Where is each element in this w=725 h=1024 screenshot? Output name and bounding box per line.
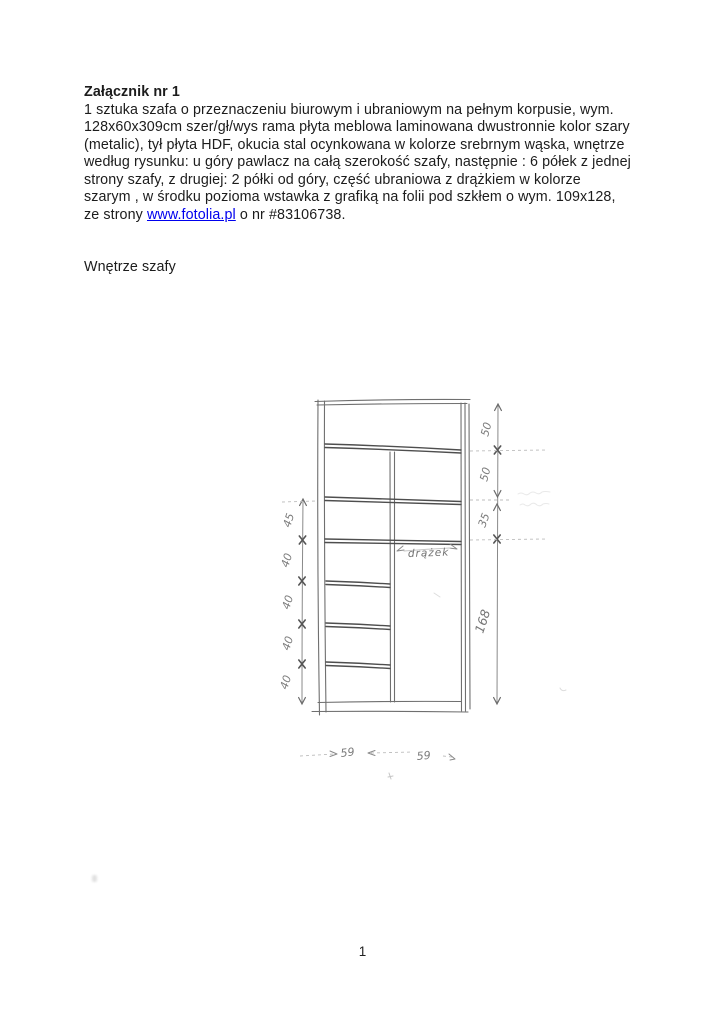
fotolia-link[interactable]: www.fotolia.pl xyxy=(147,207,236,223)
blank-line xyxy=(84,224,659,242)
dim-left-40b: 40 xyxy=(279,594,296,611)
body-line-with-link: ze strony www.fotolia.pl o nr #83106738. xyxy=(84,207,659,225)
faint-illegible-note xyxy=(518,492,550,506)
dim-left-45: 45 xyxy=(280,512,297,529)
left-dimension-chain: 45 40 40 40 40 xyxy=(277,499,316,704)
body-line: 1 sztuka szafa o przeznaczeniu biurowym … xyxy=(84,102,659,120)
dim-right-35: 35 xyxy=(476,511,493,529)
body-line: według rysunku: u góry pawlacz na całą s… xyxy=(84,154,659,172)
body-line: strony szafy, z drugiej: 2 półki od góry… xyxy=(84,172,659,190)
attachment-text-block: Załącznik nr 1 1 sztuka szafa o przeznac… xyxy=(84,84,659,277)
right-dimension-chain: 50 50 35 168 xyxy=(470,404,546,704)
dim-bottom-59a: 59 xyxy=(340,745,355,760)
attachment-title: Załącznik nr 1 xyxy=(84,84,659,102)
wardrobe-interior-caption: Wnętrze szafy xyxy=(84,259,659,277)
stray-pencil-marks xyxy=(434,593,566,691)
dim-left-40a: 40 xyxy=(278,552,295,569)
cabinet-interior xyxy=(325,444,461,702)
body-line: szarym , w środku pozioma wstawka z graf… xyxy=(84,189,659,207)
scan-speck xyxy=(92,875,97,882)
dim-right-168: 168 xyxy=(472,608,494,635)
hanging-rod-annotation: drążek xyxy=(397,544,457,560)
dim-left-40d: 40 xyxy=(277,674,294,691)
dim-right-50b: 50 xyxy=(477,466,493,483)
rod-label: drążek xyxy=(408,547,450,560)
page-number: 1 xyxy=(0,944,725,959)
document-page: Załącznik nr 1 1 sztuka szafa o przeznac… xyxy=(0,0,725,1024)
dim-bottom-59b: 59 xyxy=(416,749,431,763)
link-suffix-text: o nr #83106738. xyxy=(236,207,346,223)
bottom-dimension-row: 59 59 xyxy=(300,745,455,779)
body-line: (metalic), tył płyta HDF, okucia stal oc… xyxy=(84,137,659,155)
body-line: 128x60x309cm szer/gł/wys rama płyta mebl… xyxy=(84,119,659,137)
wardrobe-interior-sketch: drążek 45 40 40 40 40 50 xyxy=(255,365,595,805)
dim-right-50a: 50 xyxy=(478,421,494,438)
dim-left-40c: 40 xyxy=(279,635,296,652)
link-prefix-text: ze strony xyxy=(84,207,147,223)
